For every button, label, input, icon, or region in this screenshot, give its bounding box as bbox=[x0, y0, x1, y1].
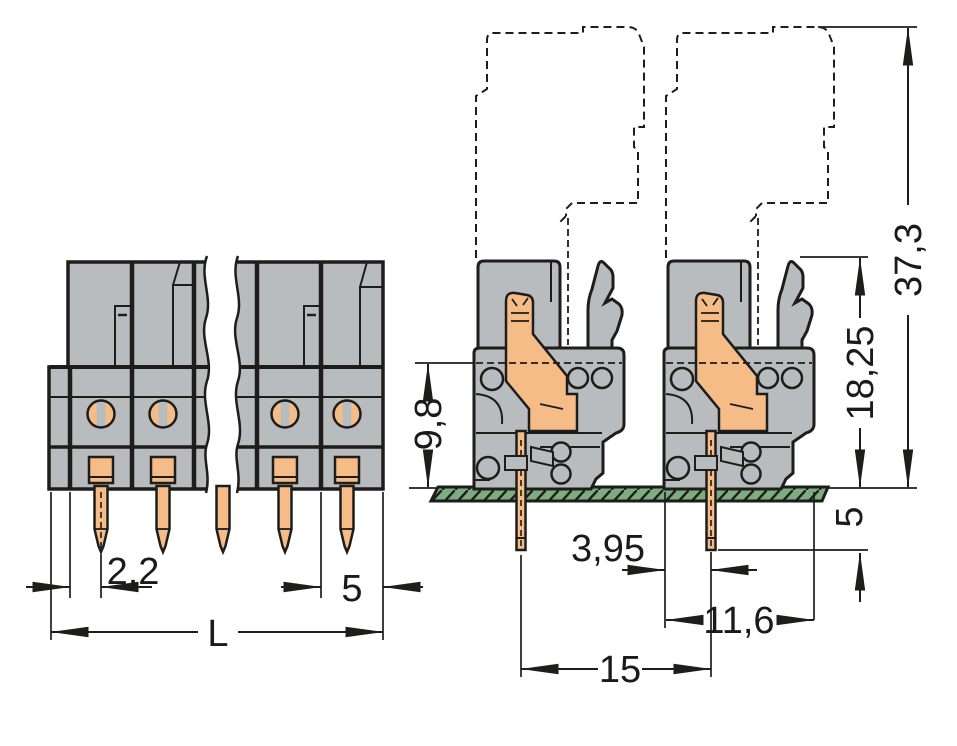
dim-label-pin-offset: 2,2 bbox=[107, 551, 160, 593]
dim-pin-edge-offset: 3,95 bbox=[571, 528, 757, 570]
dim-pin-spacing: 15 bbox=[521, 649, 711, 691]
dim-pole-pitch: 5 bbox=[281, 568, 423, 610]
dim-label-pin-spacing: 15 bbox=[599, 649, 641, 691]
mating-plug-outlines bbox=[476, 27, 834, 258]
break-line bbox=[204, 256, 240, 493]
clamp-opening bbox=[272, 399, 299, 429]
mating-plug-outline-2 bbox=[666, 27, 834, 258]
dim-label-height-with-latch: 18,25 bbox=[840, 325, 882, 420]
clamp-opening bbox=[88, 399, 115, 429]
dim-height-above-board: 9,8 bbox=[408, 364, 450, 487]
dim-label-pole-pitch: 5 bbox=[341, 568, 362, 610]
dim-pin-offset: 2,2 bbox=[26, 551, 159, 593]
dim-height-with-latch: 18,25 bbox=[840, 258, 882, 487]
dim-label-height-above-board: 9,8 bbox=[408, 398, 450, 451]
clamp-opening bbox=[150, 399, 177, 429]
dim-label-housing-depth: 11,6 bbox=[703, 600, 774, 642]
mating-plug-outline bbox=[476, 27, 644, 258]
technical-drawing-canvas: 2,2 5 L 9,8 bbox=[0, 0, 957, 746]
latch bbox=[588, 262, 622, 348]
dim-housing-depth: 11,6 bbox=[666, 600, 814, 642]
dim-total-height: 37,3 bbox=[888, 28, 930, 487]
dim-label-pin-edge-offset: 3,95 bbox=[571, 528, 645, 570]
dim-label-total-height: 37,3 bbox=[888, 223, 930, 297]
dim-label-total-length: L bbox=[207, 613, 228, 655]
clamp-opening bbox=[334, 399, 361, 429]
dim-pin-length: 5 bbox=[829, 506, 871, 602]
solder-pins bbox=[95, 486, 354, 552]
dim-total-length: L bbox=[51, 613, 383, 655]
dim-label-pin-length: 5 bbox=[829, 506, 871, 527]
front-view bbox=[49, 256, 383, 552]
